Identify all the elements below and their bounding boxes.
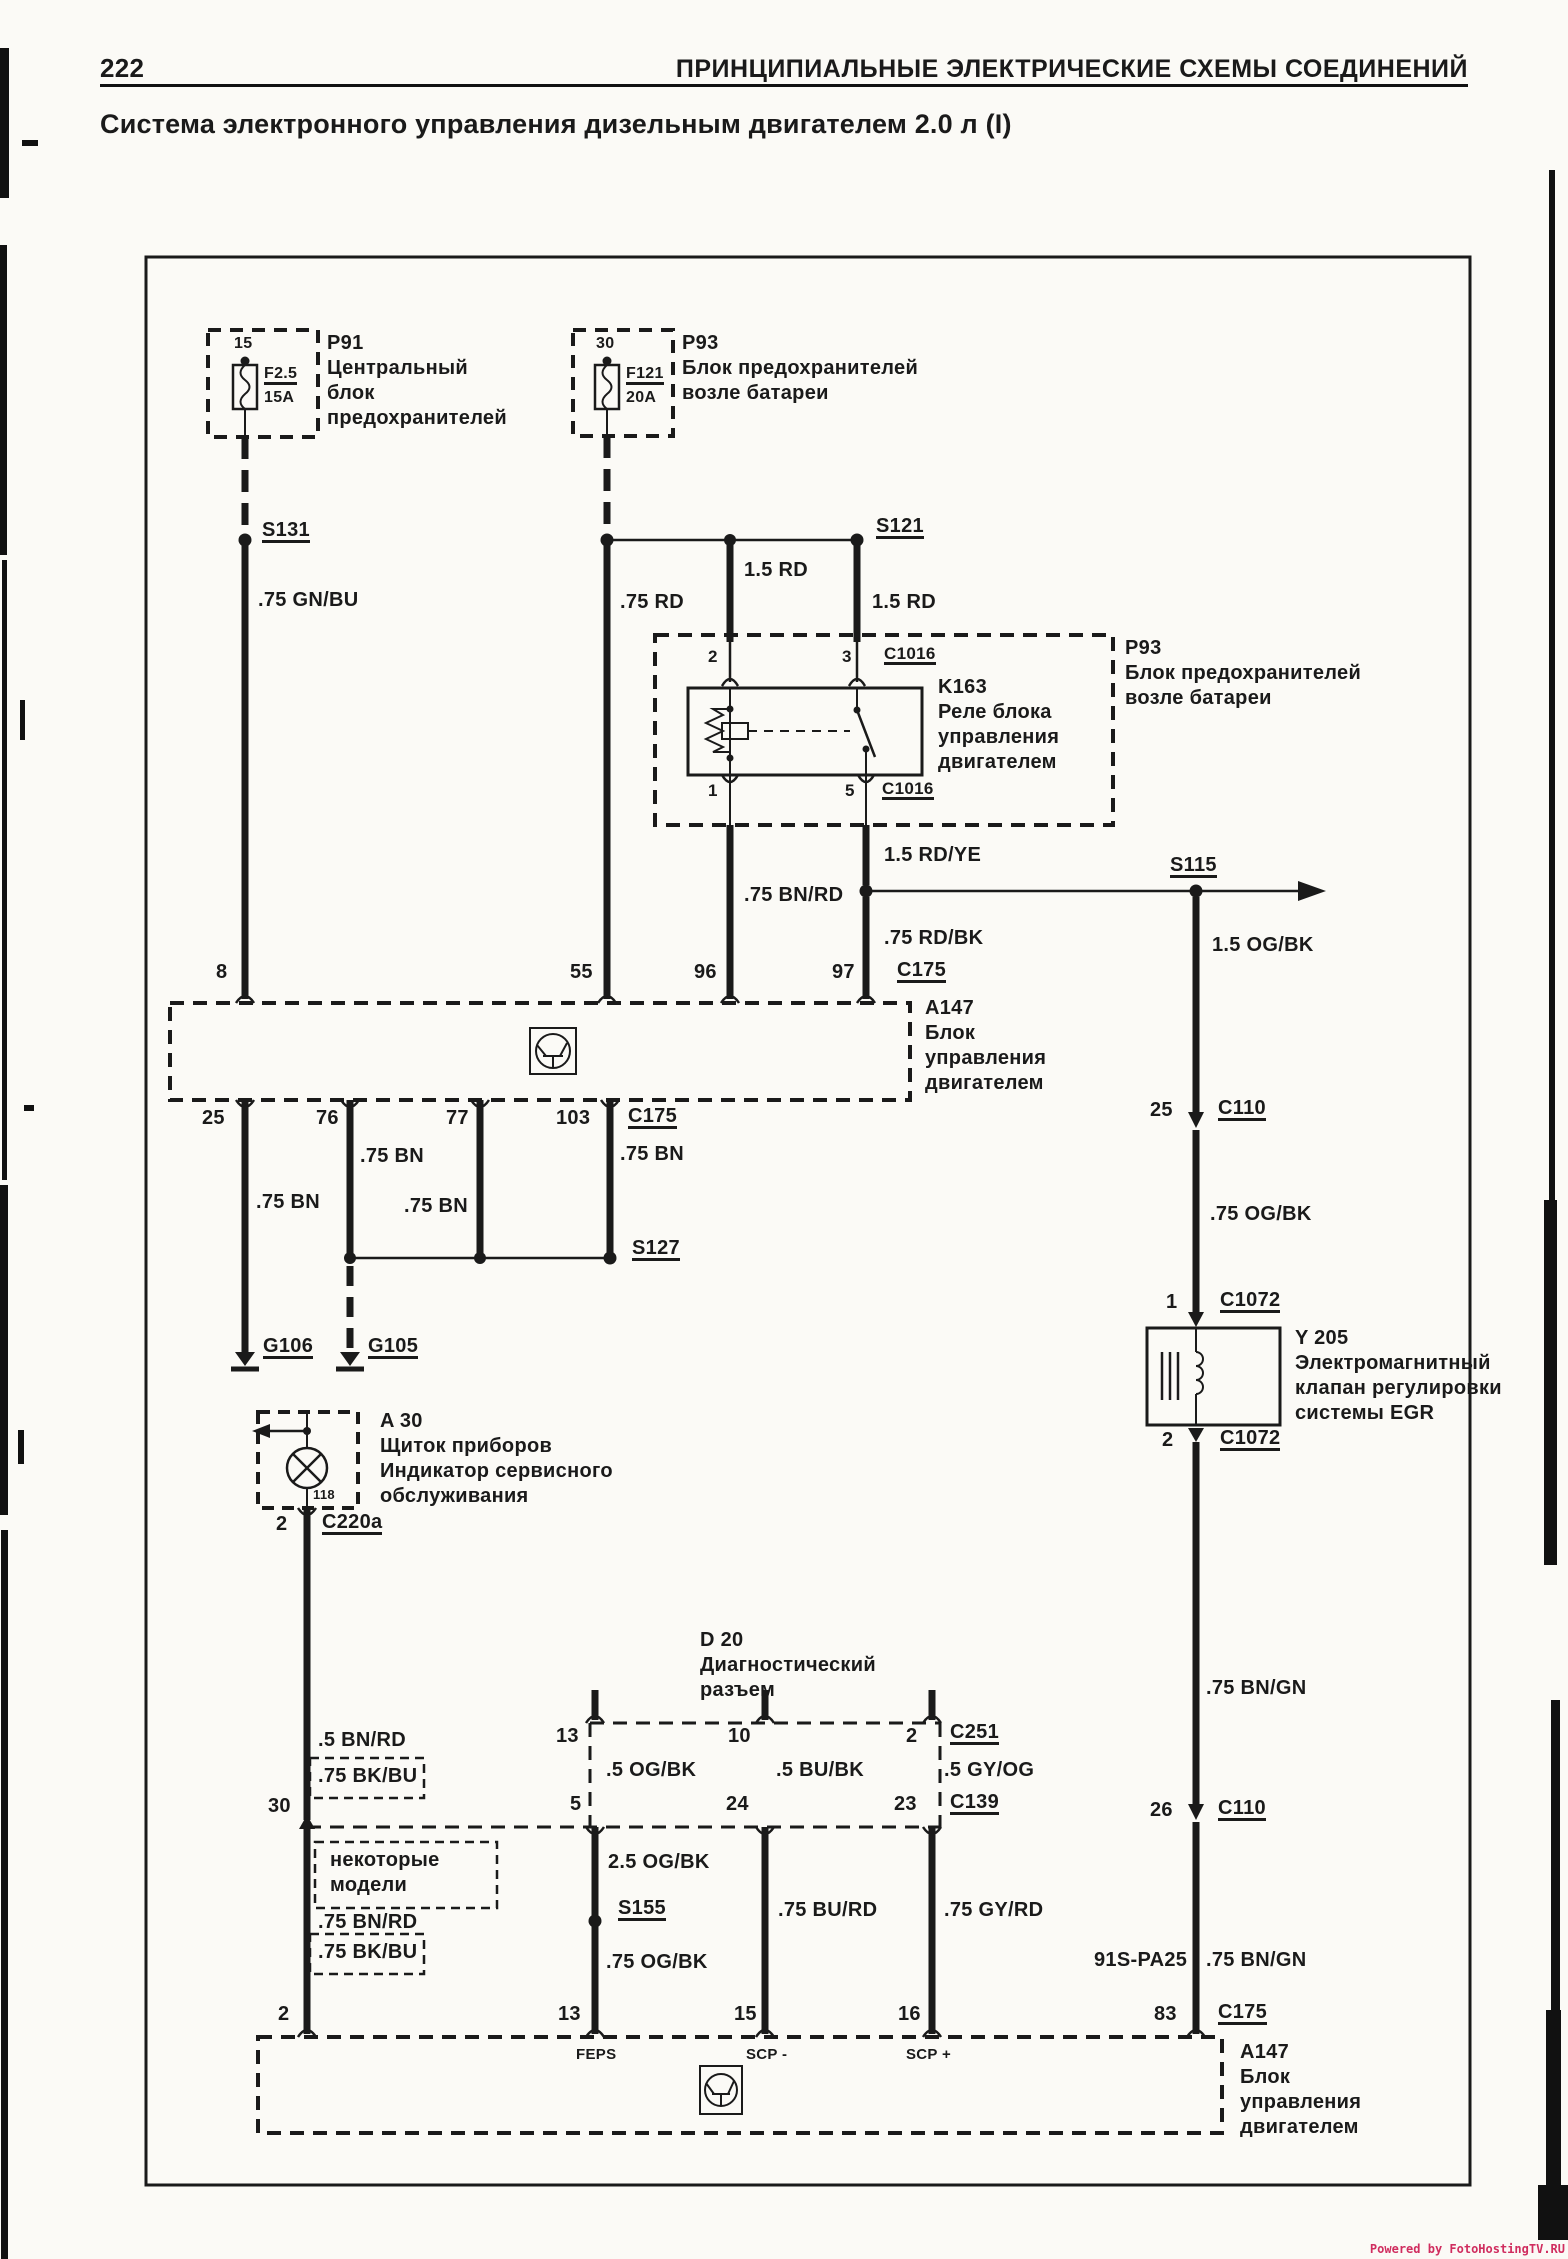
signal-feps: FEPS xyxy=(576,2046,616,2065)
scan-artifact xyxy=(1544,1200,1557,1565)
scan-artifact xyxy=(24,1105,34,1111)
wire-label-bngn-b: .75 BN/GN xyxy=(1206,1948,1307,1973)
junction-s115-label: S115 xyxy=(1170,855,1217,878)
cluster-a30-label: A 30Щиток приборов Индикатор сервисногоо… xyxy=(380,1409,613,1509)
scan-artifact xyxy=(20,700,25,740)
ecu-pin-15: 15 xyxy=(734,2002,757,2027)
relay-k163-label: K163Реле блока управлениядвигателем xyxy=(938,675,1059,775)
wire-label-bkbu-a: .75 BK/BU xyxy=(318,1764,417,1789)
conn-c1072-bottom: C1072 xyxy=(1220,1428,1280,1451)
relay-box-p93-label: P93Блок предохранителейвозле батареи xyxy=(1125,636,1361,711)
wire-label-ogbk75-right: .75 OG/BK xyxy=(1210,1202,1312,1227)
p91-fuse-rating: 15A xyxy=(264,388,294,408)
c110-connector-arrow xyxy=(1188,1112,1204,1128)
conn-c110-bottom: C110 xyxy=(1218,1798,1266,1821)
relay-pin-2: 2 xyxy=(708,646,718,667)
conn-c139: C139 xyxy=(950,1792,999,1815)
scan-artifact xyxy=(0,48,9,198)
fuse-p91-symbol xyxy=(208,330,318,437)
ecu-conn-c175-bottom: C175 xyxy=(628,1106,677,1129)
relay-conn-top: C1016 xyxy=(884,645,936,665)
wire-label-rdbk: .75 RD/BK xyxy=(884,926,983,951)
ground-g106-label: G106 xyxy=(263,1336,313,1359)
ecu-pin-8: 8 xyxy=(216,960,227,985)
junction-s155-label: S155 xyxy=(618,1898,666,1921)
d20-pin-2: 2 xyxy=(906,1724,917,1749)
p91-fuse-name: F2.5 xyxy=(264,366,297,385)
wire-label-bnrd75-b: .75 BN/RD xyxy=(318,1910,417,1935)
watermark: Powered by FotoHostingTV.RU xyxy=(1370,2242,1565,2256)
valve-y205-label: Y 205Электромагнитный клапан регулировки… xyxy=(1295,1326,1502,1426)
c110-connector-arrow xyxy=(1188,1804,1204,1820)
wire-label-rd15-mid: 1.5 RD xyxy=(744,558,808,583)
junction-s121-label: S121 xyxy=(876,516,924,539)
d20-pin-10: 10 xyxy=(728,1724,751,1749)
ecu-conn-c175-top: C175 xyxy=(897,960,946,983)
wire-label-bn-c: .75 BN xyxy=(404,1194,468,1219)
scan-artifact xyxy=(1,1530,8,2259)
ground-g105-symbol xyxy=(336,1352,364,1369)
ecu-pin-13: 13 xyxy=(558,2002,581,2027)
p93-fuse-rating: 20A xyxy=(626,388,656,408)
junction-s155-dot xyxy=(589,1915,602,1928)
c1072-connector-arrow xyxy=(1188,1312,1204,1327)
c1072-connector-arrow xyxy=(1188,1428,1204,1442)
scan-artifact xyxy=(1549,170,1555,1200)
p93-fuse-name: F121 xyxy=(626,366,664,385)
wire-label-rdye: 1.5 RD/YE xyxy=(884,843,981,868)
scan-artifact xyxy=(22,140,38,146)
relay-pin-3: 3 xyxy=(842,646,852,667)
a30-pin-118: 118 xyxy=(313,1487,335,1503)
wire-label-bn-a: .75 BN xyxy=(256,1190,320,1215)
conn-c1072-top: C1072 xyxy=(1220,1290,1280,1313)
cluster-a30-symbol xyxy=(252,1412,358,1515)
some-models-note: некоторыемодели xyxy=(330,1848,440,1898)
wire-label-ogbk5: .5 OG/BK xyxy=(606,1758,696,1783)
wire-label-rd75: .75 RD xyxy=(620,590,684,615)
d20-pin-13: 13 xyxy=(556,1724,579,1749)
ecu-pin-97: 97 xyxy=(832,960,855,985)
harness-id: 91S-PA25 xyxy=(1094,1948,1187,1973)
ecu-pin-77: 77 xyxy=(446,1106,469,1131)
wire-label-ogbk75-mid: .75 OG/BK xyxy=(606,1950,708,1975)
junction-s127-label: S127 xyxy=(632,1238,680,1261)
wire-label-bnrd75: .75 BN/RD xyxy=(744,883,843,908)
p93-pin-30: 30 xyxy=(596,334,614,354)
wire-label-burd75: .75 BU/RD xyxy=(778,1898,877,1923)
scanned-page: 222 ПРИНЦИПИАЛЬНЫЕ ЭЛЕКТРИЧЕСКИЕ СХЕМЫ С… xyxy=(0,0,1568,2259)
ground-g106-symbol xyxy=(231,1352,259,1369)
page-number: 222 xyxy=(100,52,144,85)
wire-label-gyog5: .5 GY/OG xyxy=(944,1758,1034,1783)
scan-artifact xyxy=(0,1185,8,1515)
signal-scp-minus: SCP - xyxy=(746,2046,787,2065)
pin-2-bottom: 2 xyxy=(278,2002,289,2027)
pin-83-c175: 83 xyxy=(1154,2002,1177,2027)
header-rule xyxy=(100,84,1468,87)
scan-artifact xyxy=(1538,2185,1568,2240)
diagram-title: Система электронного управления дизельны… xyxy=(100,108,1012,142)
ecu-pin-16: 16 xyxy=(898,2002,921,2027)
wire-label-ogbk25: 2.5 OG/BK xyxy=(608,1850,710,1875)
ground-g105-label: G105 xyxy=(368,1336,418,1359)
ecu-pin-25: 25 xyxy=(202,1106,225,1131)
d20-pin-24: 24 xyxy=(726,1792,749,1817)
valve-y205-symbol xyxy=(1147,1328,1280,1425)
y205-pin-1: 1 xyxy=(1166,1290,1177,1315)
conn-c175-right: C175 xyxy=(1218,2002,1267,2025)
wire-label-bngn-a: .75 BN/GN xyxy=(1206,1676,1307,1701)
p93-label: P93Блок предохранителейвозле батареи xyxy=(682,331,918,406)
diag-d20-label: D 20Диагностическийразъем xyxy=(700,1628,876,1703)
relay-pin-5: 5 xyxy=(845,780,855,801)
scan-artifact xyxy=(1546,2010,1561,2185)
pin-25-c110: 25 xyxy=(1150,1098,1173,1123)
wire-label-bubk5: .5 BU/BK xyxy=(776,1758,864,1783)
wire-label-rd15-right: 1.5 RD xyxy=(872,590,936,615)
ecu-pin-55: 55 xyxy=(570,960,593,985)
a30-pin-2: 2 xyxy=(276,1512,287,1537)
ecu-a147-bottom-label: A147Блок управлениядвигателем xyxy=(1240,2040,1361,2140)
wire-label-bnrd5: .5 BN/RD xyxy=(318,1728,406,1753)
relay-pin-1: 1 xyxy=(708,780,718,801)
d20-pin-23: 23 xyxy=(894,1792,917,1817)
conn-c251: C251 xyxy=(950,1722,999,1745)
s115-arrow xyxy=(1298,881,1326,901)
wire-label-bn-b: .75 BN xyxy=(360,1144,424,1169)
ecu-a147-top-label: A147Блок управлениядвигателем xyxy=(925,996,1046,1096)
wire-label-bkbu-b: .75 BK/BU xyxy=(318,1940,417,1965)
scan-artifact xyxy=(2,560,7,1180)
d20-pin-5: 5 xyxy=(570,1792,581,1817)
p91-pin-15: 15 xyxy=(234,334,252,354)
ecu-a147-bottom-box xyxy=(258,2030,1222,2133)
signal-scp-plus: SCP + xyxy=(906,2046,951,2065)
wire-label-bn-d: .75 BN xyxy=(620,1142,684,1167)
scan-artifact xyxy=(18,1430,24,1464)
scan-artifact xyxy=(1551,1700,1560,2010)
pin-30: 30 xyxy=(268,1794,291,1819)
p91-label: P91Центральный блокпредохранителей xyxy=(327,331,507,431)
conn-c110-top: C110 xyxy=(1218,1098,1266,1121)
relay-conn-bottom: C1016 xyxy=(882,780,934,800)
wire-label-ogbk15: 1.5 OG/BK xyxy=(1212,933,1314,958)
ecu-pin-76: 76 xyxy=(316,1106,339,1131)
y205-pin-2: 2 xyxy=(1162,1428,1173,1453)
conn-c220a: C220a xyxy=(322,1512,382,1535)
wire-label-gyrd75: .75 GY/RD xyxy=(944,1898,1043,1923)
page-header: ПРИНЦИПИАЛЬНЫЕ ЭЛЕКТРИЧЕСКИЕ СХЕМЫ СОЕДИ… xyxy=(676,54,1468,85)
pin-26-c110: 26 xyxy=(1150,1798,1173,1823)
scan-artifact xyxy=(0,245,7,555)
ecu-a147-top-box xyxy=(170,996,910,1107)
ecu-pin-103: 103 xyxy=(556,1106,590,1131)
junction-s131-label: S131 xyxy=(262,520,310,543)
wire-label-gn-bu: .75 GN/BU xyxy=(258,588,359,613)
ecu-pin-96: 96 xyxy=(694,960,717,985)
